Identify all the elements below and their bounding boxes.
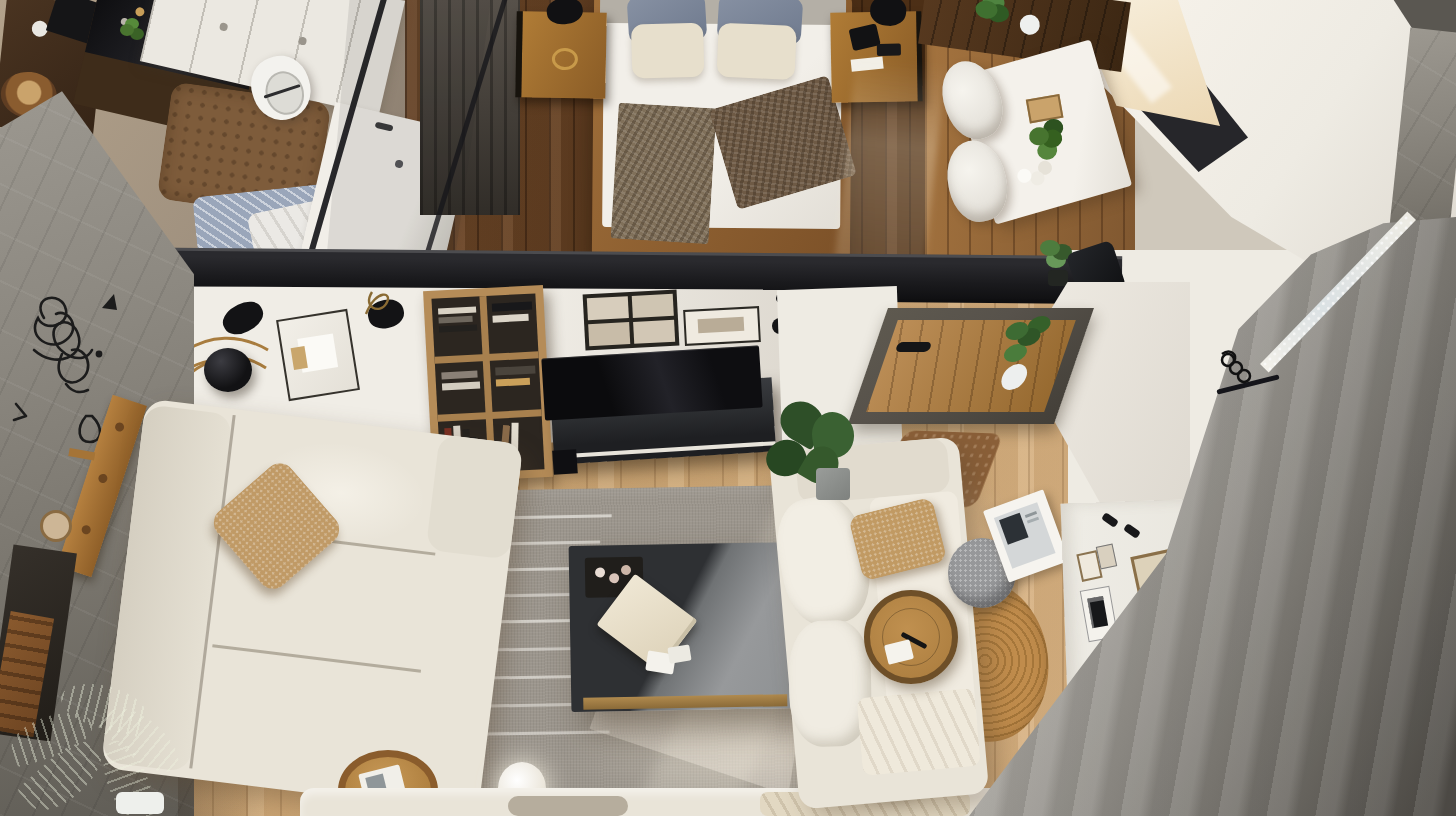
sofa-blanket [856, 688, 980, 776]
plant-striped-leaves [0, 676, 200, 816]
black-art [1087, 596, 1108, 628]
plant-foliage [1040, 240, 1060, 256]
lamp-cord [356, 280, 400, 318]
potted-plant [974, 0, 998, 20]
cabinet-handle [219, 22, 229, 32]
table-wood-base [583, 694, 787, 710]
art-cell [588, 322, 630, 346]
tray-side-table [864, 590, 958, 684]
blossom [595, 567, 605, 577]
table-lamp [545, 0, 584, 26]
pillow-cream-left [631, 23, 704, 79]
framed-panorama-art [683, 306, 761, 346]
cushion-grey [508, 796, 628, 816]
bathroom-plant [120, 24, 134, 36]
floor-lamp-shade [204, 348, 252, 392]
art-cell [632, 294, 674, 318]
entry-floor [866, 320, 1076, 412]
rack-peg [81, 524, 92, 535]
plant-pot-white [116, 792, 164, 814]
plant-pot-grey [816, 468, 850, 500]
pillow-cream-right [717, 23, 797, 80]
white-vase [1016, 167, 1033, 184]
plant-heart-leaf [758, 396, 868, 502]
throw-blanket-left [611, 103, 717, 245]
apartment-top-view [0, 0, 1456, 816]
panorama-photo [698, 317, 745, 333]
framed-art-grid [583, 290, 680, 351]
sofa-armrest [426, 434, 524, 559]
white-card [667, 644, 691, 663]
coffee-table [569, 542, 800, 712]
nightstand-left [515, 11, 606, 99]
art-cell [633, 320, 675, 344]
cabinet-handle [298, 36, 308, 46]
white-pot [1019, 13, 1042, 36]
curtain-rings [1216, 346, 1260, 390]
tv-screen [541, 345, 762, 420]
entry-doorway [848, 308, 1094, 424]
desk-plant [1027, 125, 1051, 148]
art-cell [587, 296, 629, 320]
wall-mirror [276, 309, 360, 401]
plant-pot [1048, 270, 1068, 286]
rack-peg [114, 421, 125, 432]
stool-top [40, 510, 72, 542]
bed [592, 0, 852, 261]
speaker [552, 449, 578, 475]
desk-photo-frame [1026, 94, 1064, 124]
sofa-seam [212, 644, 421, 673]
door-handle [895, 342, 932, 352]
gold-ring-decor [552, 48, 578, 70]
rack-peg [97, 473, 108, 484]
remote-control [877, 44, 901, 56]
toilet-seat [260, 66, 310, 120]
